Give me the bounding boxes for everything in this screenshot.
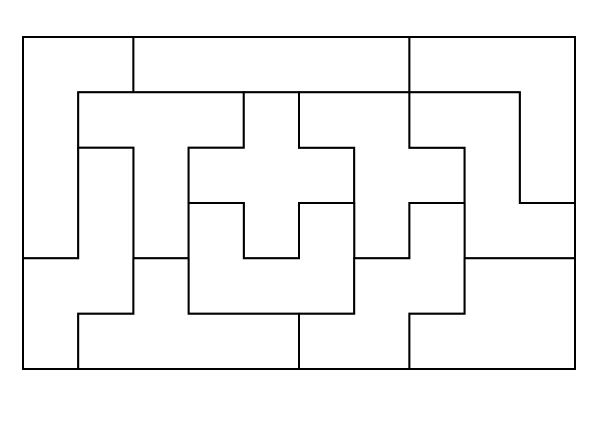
page-background <box>0 0 600 425</box>
pentomino-piece-I <box>133 37 409 92</box>
pentomino-tiling-diagram <box>0 0 600 425</box>
